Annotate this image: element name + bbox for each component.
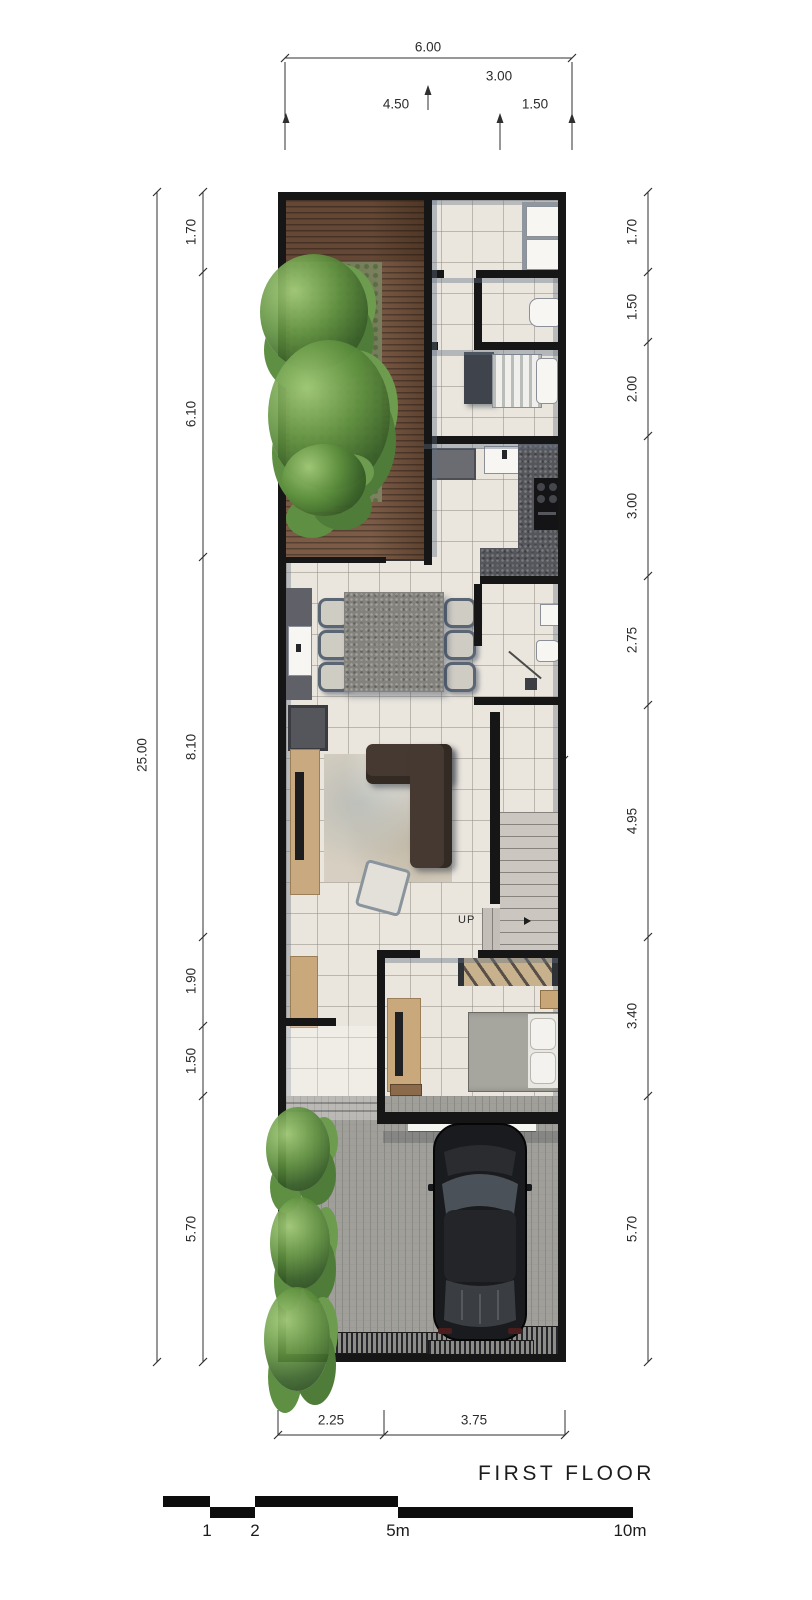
dim-left-seg: 1.70 [184,219,199,245]
dim-left-seg: 6.10 [184,401,199,427]
tree [282,444,366,516]
dim-right-seg: 4.95 [625,808,640,834]
floor-plan: UP [278,192,566,1362]
shrub [266,1107,330,1191]
shrub [270,1197,330,1289]
dim-left-seg: 1.50 [184,1048,199,1074]
scalebar-segment [398,1507,633,1518]
scalebar-segment [210,1507,255,1518]
dim-right-seg: 1.70 [625,219,640,245]
dim-left-total: 25.00 [135,738,150,772]
scalebar-segment [163,1496,210,1507]
dim-right-seg: 2.00 [625,376,640,402]
scalebar-label: 2 [250,1521,259,1541]
scalebar-label: 5m [386,1521,410,1541]
dim-left-seg: 1.90 [184,968,199,994]
scalebar-segment [255,1496,398,1507]
page-title: FIRST FLOOR [478,1462,655,1486]
dim-top-left-sub: 4.50 [383,97,409,112]
dim-right-seg: 3.00 [625,493,640,519]
dim-right-seg: 5.70 [625,1216,640,1242]
dim-bottom-seg: 3.75 [461,1413,487,1428]
car-taillight [508,1328,522,1334]
scalebar-label: 10m [613,1521,646,1541]
car-roof [444,1210,516,1282]
dim-top-right: 3.00 [486,69,512,84]
dim-left-seg: 8.10 [184,734,199,760]
floor-plan-sheet: 6.00 3.00 4.50 1.50 25.00 1.70 6.10 8.10… [0,0,812,1600]
dim-left-seg: 5.70 [184,1216,199,1242]
dim-top-total: 6.00 [415,40,441,55]
car-top-view [428,1122,532,1342]
dim-top-right-sub: 1.50 [522,97,548,112]
dim-right-seg: 1.50 [625,294,640,320]
car-taillight [438,1328,452,1334]
dim-right-seg: 2.75 [625,627,640,653]
dim-right-seg: 3.40 [625,1003,640,1029]
dim-bottom-seg: 2.25 [318,1413,344,1428]
scalebar-label: 1 [202,1521,211,1541]
shrub [264,1287,330,1391]
